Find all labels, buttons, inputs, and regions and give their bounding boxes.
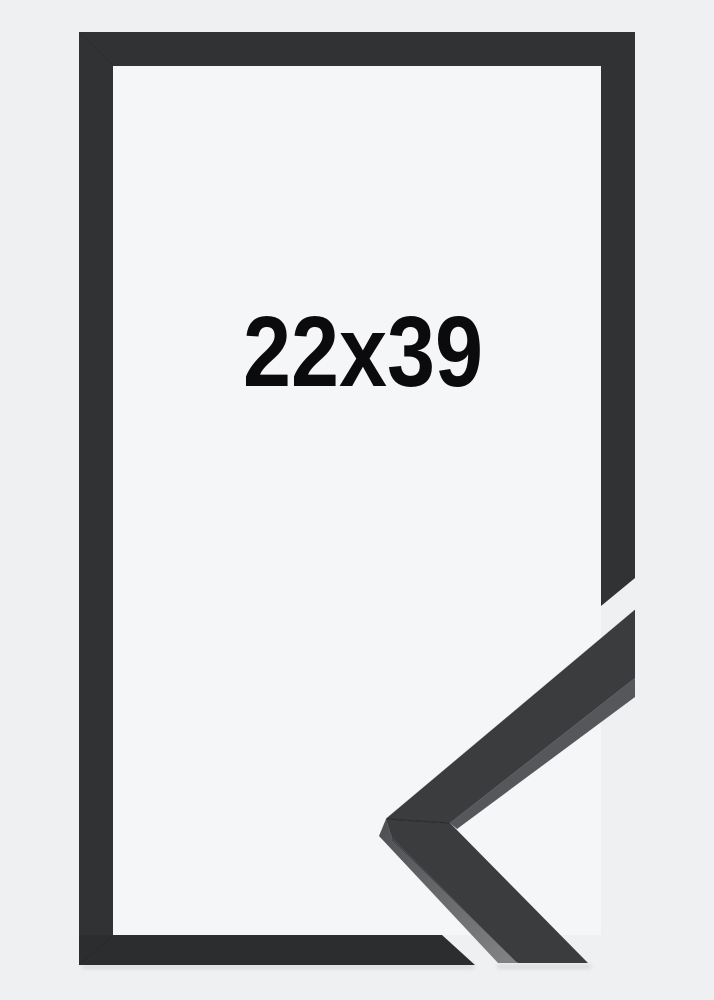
- frame-opening-backing: [113, 66, 601, 935]
- sample-bottom-shadow: [497, 965, 591, 969]
- product-photo: 22x39: [0, 0, 714, 1000]
- frame-bottom-bar: [79, 935, 475, 965]
- frame-right-bar: [601, 32, 635, 606]
- frame-top-bar: [79, 32, 635, 66]
- photo-canvas: 22x39: [0, 0, 714, 1000]
- frame-bottom-shadow: [82, 965, 474, 969]
- frame-left-bar: [79, 32, 113, 965]
- size-label: 22x39: [243, 296, 483, 408]
